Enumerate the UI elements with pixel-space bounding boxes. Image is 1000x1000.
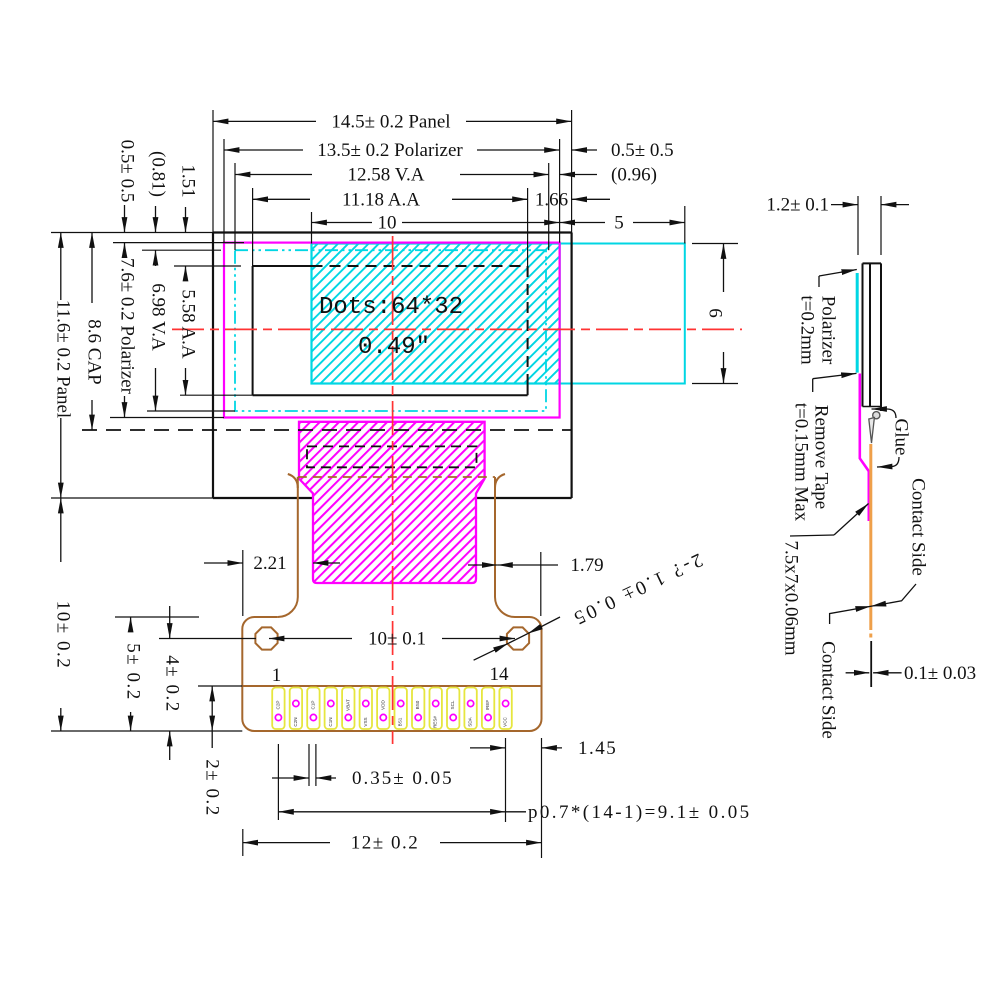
- svg-text:11.18 A.A: 11.18 A.A: [342, 189, 420, 210]
- svg-text:7.5x7x0.06mm: 7.5x7x0.06mm: [781, 540, 802, 655]
- svg-text:10: 10: [378, 213, 397, 234]
- svg-text:5± 0.2: 5± 0.2: [123, 643, 144, 700]
- svg-text:5: 5: [614, 213, 624, 234]
- svg-text:7.6± 0.2 Polarizer: 7.6± 0.2 Polarizer: [117, 258, 138, 395]
- svg-text:t=0.15mm Max: t=0.15mm Max: [791, 403, 812, 522]
- svg-text:VCC: VCC: [503, 716, 508, 726]
- svg-text:8.6 CAP: 8.6 CAP: [84, 319, 105, 384]
- svg-text:0.5± 0.5: 0.5± 0.5: [611, 140, 674, 161]
- svg-text:11.6± 0.2 Panel: 11.6± 0.2 Panel: [53, 300, 74, 418]
- svg-text:1.66: 1.66: [535, 189, 568, 210]
- svg-text:4± 0.2: 4± 0.2: [162, 655, 183, 712]
- svg-text:10± 0.1: 10± 0.1: [368, 629, 426, 650]
- svg-text:VBAT: VBAT: [345, 699, 350, 711]
- svg-text:IREF: IREF: [485, 700, 490, 711]
- svg-text:BS0: BS0: [415, 700, 420, 709]
- svg-text:SCL: SCL: [450, 700, 455, 709]
- svg-text:C2N: C2N: [293, 717, 298, 726]
- svg-text:14.5± 0.2 Panel: 14.5± 0.2 Panel: [331, 111, 450, 132]
- svg-text:Contact Side: Contact Side: [908, 478, 929, 576]
- svg-text:12± 0.2: 12± 0.2: [351, 833, 419, 854]
- svg-text:13.5± 0.2 Polarizer: 13.5± 0.2 Polarizer: [317, 140, 463, 161]
- svg-text:5.58 A.A: 5.58 A.A: [178, 289, 199, 358]
- svg-text:C1P: C1P: [310, 701, 315, 710]
- svg-text:C2P: C2P: [275, 701, 280, 710]
- svg-text:1.2± 0.1: 1.2± 0.1: [766, 195, 829, 216]
- svg-text:(0.96): (0.96): [611, 165, 657, 186]
- svg-text:0.5± 0.5: 0.5± 0.5: [117, 140, 138, 203]
- svg-text:Polarizer: Polarizer: [818, 296, 839, 365]
- svg-text:1.51: 1.51: [178, 164, 199, 197]
- svg-text:1.45: 1.45: [578, 738, 617, 759]
- svg-text:BS1: BS1: [398, 717, 403, 726]
- svg-text:C1N: C1N: [328, 717, 333, 726]
- svg-text:1.79: 1.79: [570, 555, 603, 576]
- svg-text:6: 6: [705, 308, 726, 318]
- svg-text:6.98 V.A: 6.98 V.A: [148, 283, 169, 351]
- svg-text:2.21: 2.21: [253, 553, 286, 574]
- svg-text:1: 1: [272, 665, 282, 686]
- svg-text:Dots:64*32: Dots:64*32: [319, 294, 463, 321]
- svg-text:10± 0.2: 10± 0.2: [53, 601, 74, 669]
- svg-text:Remove Tape: Remove Tape: [811, 405, 832, 509]
- svg-text:VDD: VDD: [380, 699, 385, 709]
- svg-text:0.35± 0.05: 0.35± 0.05: [352, 768, 454, 789]
- svg-text:SDA: SDA: [468, 716, 473, 726]
- svg-text:t=0.2mm: t=0.2mm: [797, 295, 818, 365]
- svg-text:p0.7*(14-1)=9.1± 0.05: p0.7*(14-1)=9.1± 0.05: [528, 802, 752, 823]
- svg-text:RES#: RES#: [433, 716, 438, 728]
- svg-text:VSS: VSS: [363, 717, 368, 726]
- svg-text:12.58 V.A: 12.58 V.A: [348, 165, 425, 186]
- svg-text:(0.81): (0.81): [148, 151, 169, 197]
- svg-text:0.49″: 0.49″: [358, 334, 430, 361]
- svg-text:2± 0.2: 2± 0.2: [202, 759, 223, 816]
- svg-text:14: 14: [490, 664, 510, 685]
- svg-text:Glue: Glue: [891, 419, 912, 456]
- svg-text:0.1± 0.03: 0.1± 0.03: [904, 663, 976, 684]
- svg-text:Contact Side: Contact Side: [818, 641, 839, 739]
